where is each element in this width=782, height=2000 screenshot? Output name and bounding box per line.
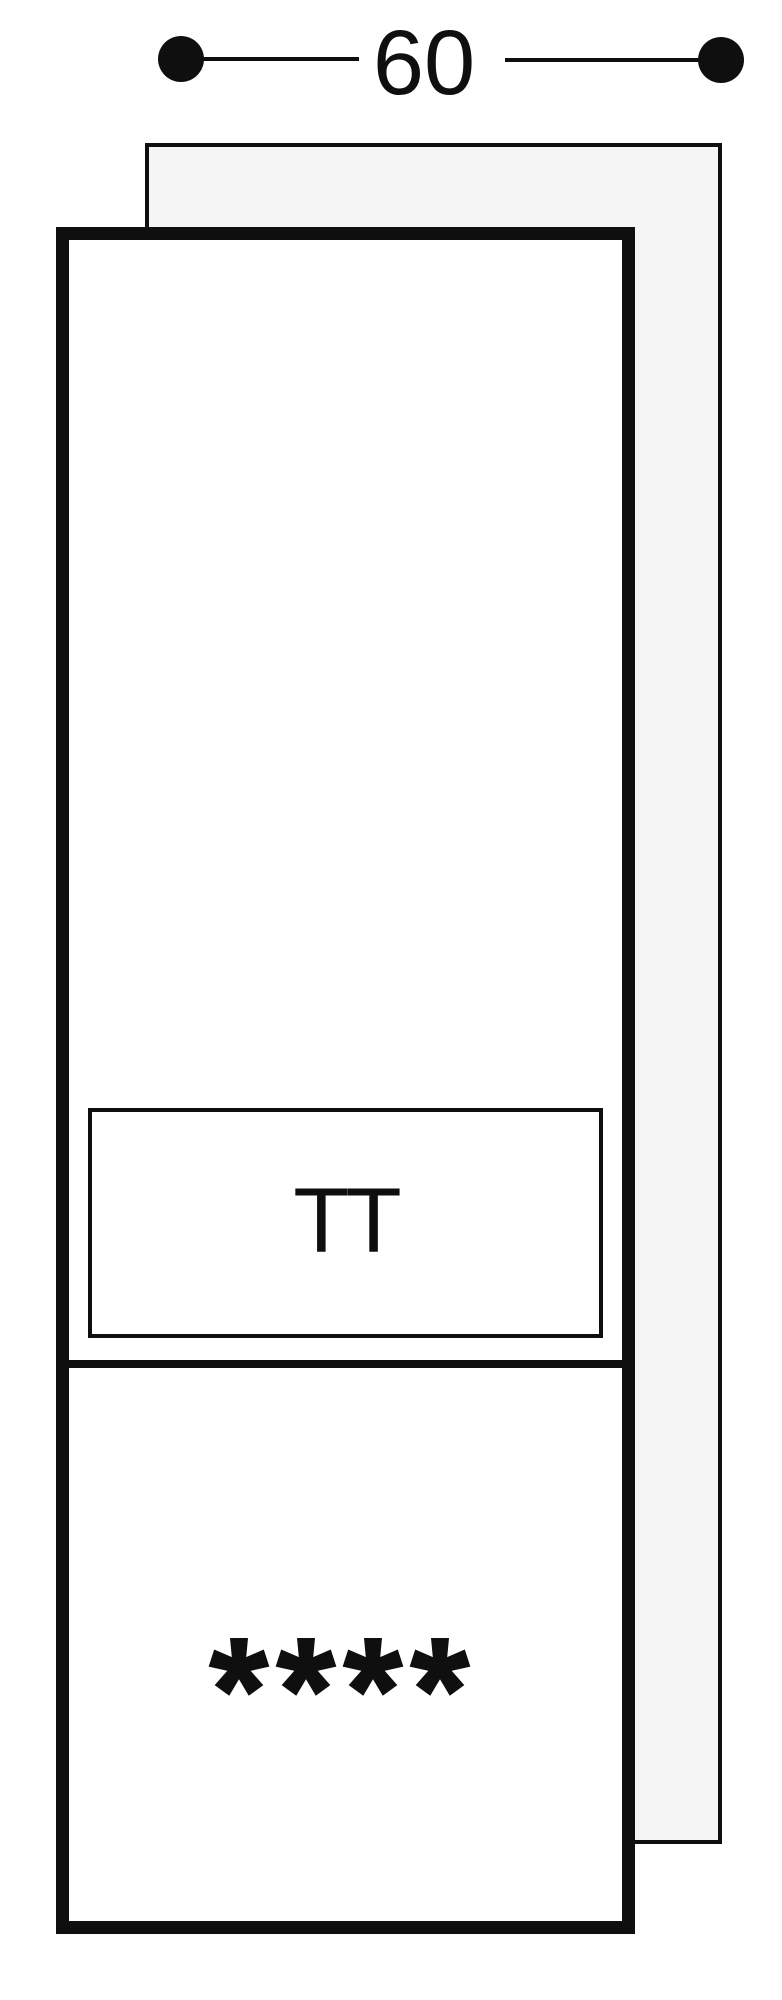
dimension-value-label: 60 xyxy=(364,17,484,109)
fridge-label-text: TT xyxy=(293,1175,397,1267)
freezer-star-icon xyxy=(209,1638,270,1696)
dimension-line-right-segment xyxy=(505,58,698,62)
freezer-star-rating xyxy=(205,1632,475,1702)
compartment-divider xyxy=(69,1360,622,1368)
dimension-endpoint-dot-left xyxy=(158,36,204,82)
dimension-endpoint-dot-right xyxy=(698,37,744,83)
dimension-line-left-segment xyxy=(203,57,359,61)
freezer-star-icon xyxy=(343,1638,404,1696)
freezer-star-icon xyxy=(276,1638,337,1696)
fridge-label-box: TT xyxy=(88,1108,603,1338)
installation-diagram: 60 TT xyxy=(0,0,782,2000)
freezer-star-icon xyxy=(410,1638,471,1696)
